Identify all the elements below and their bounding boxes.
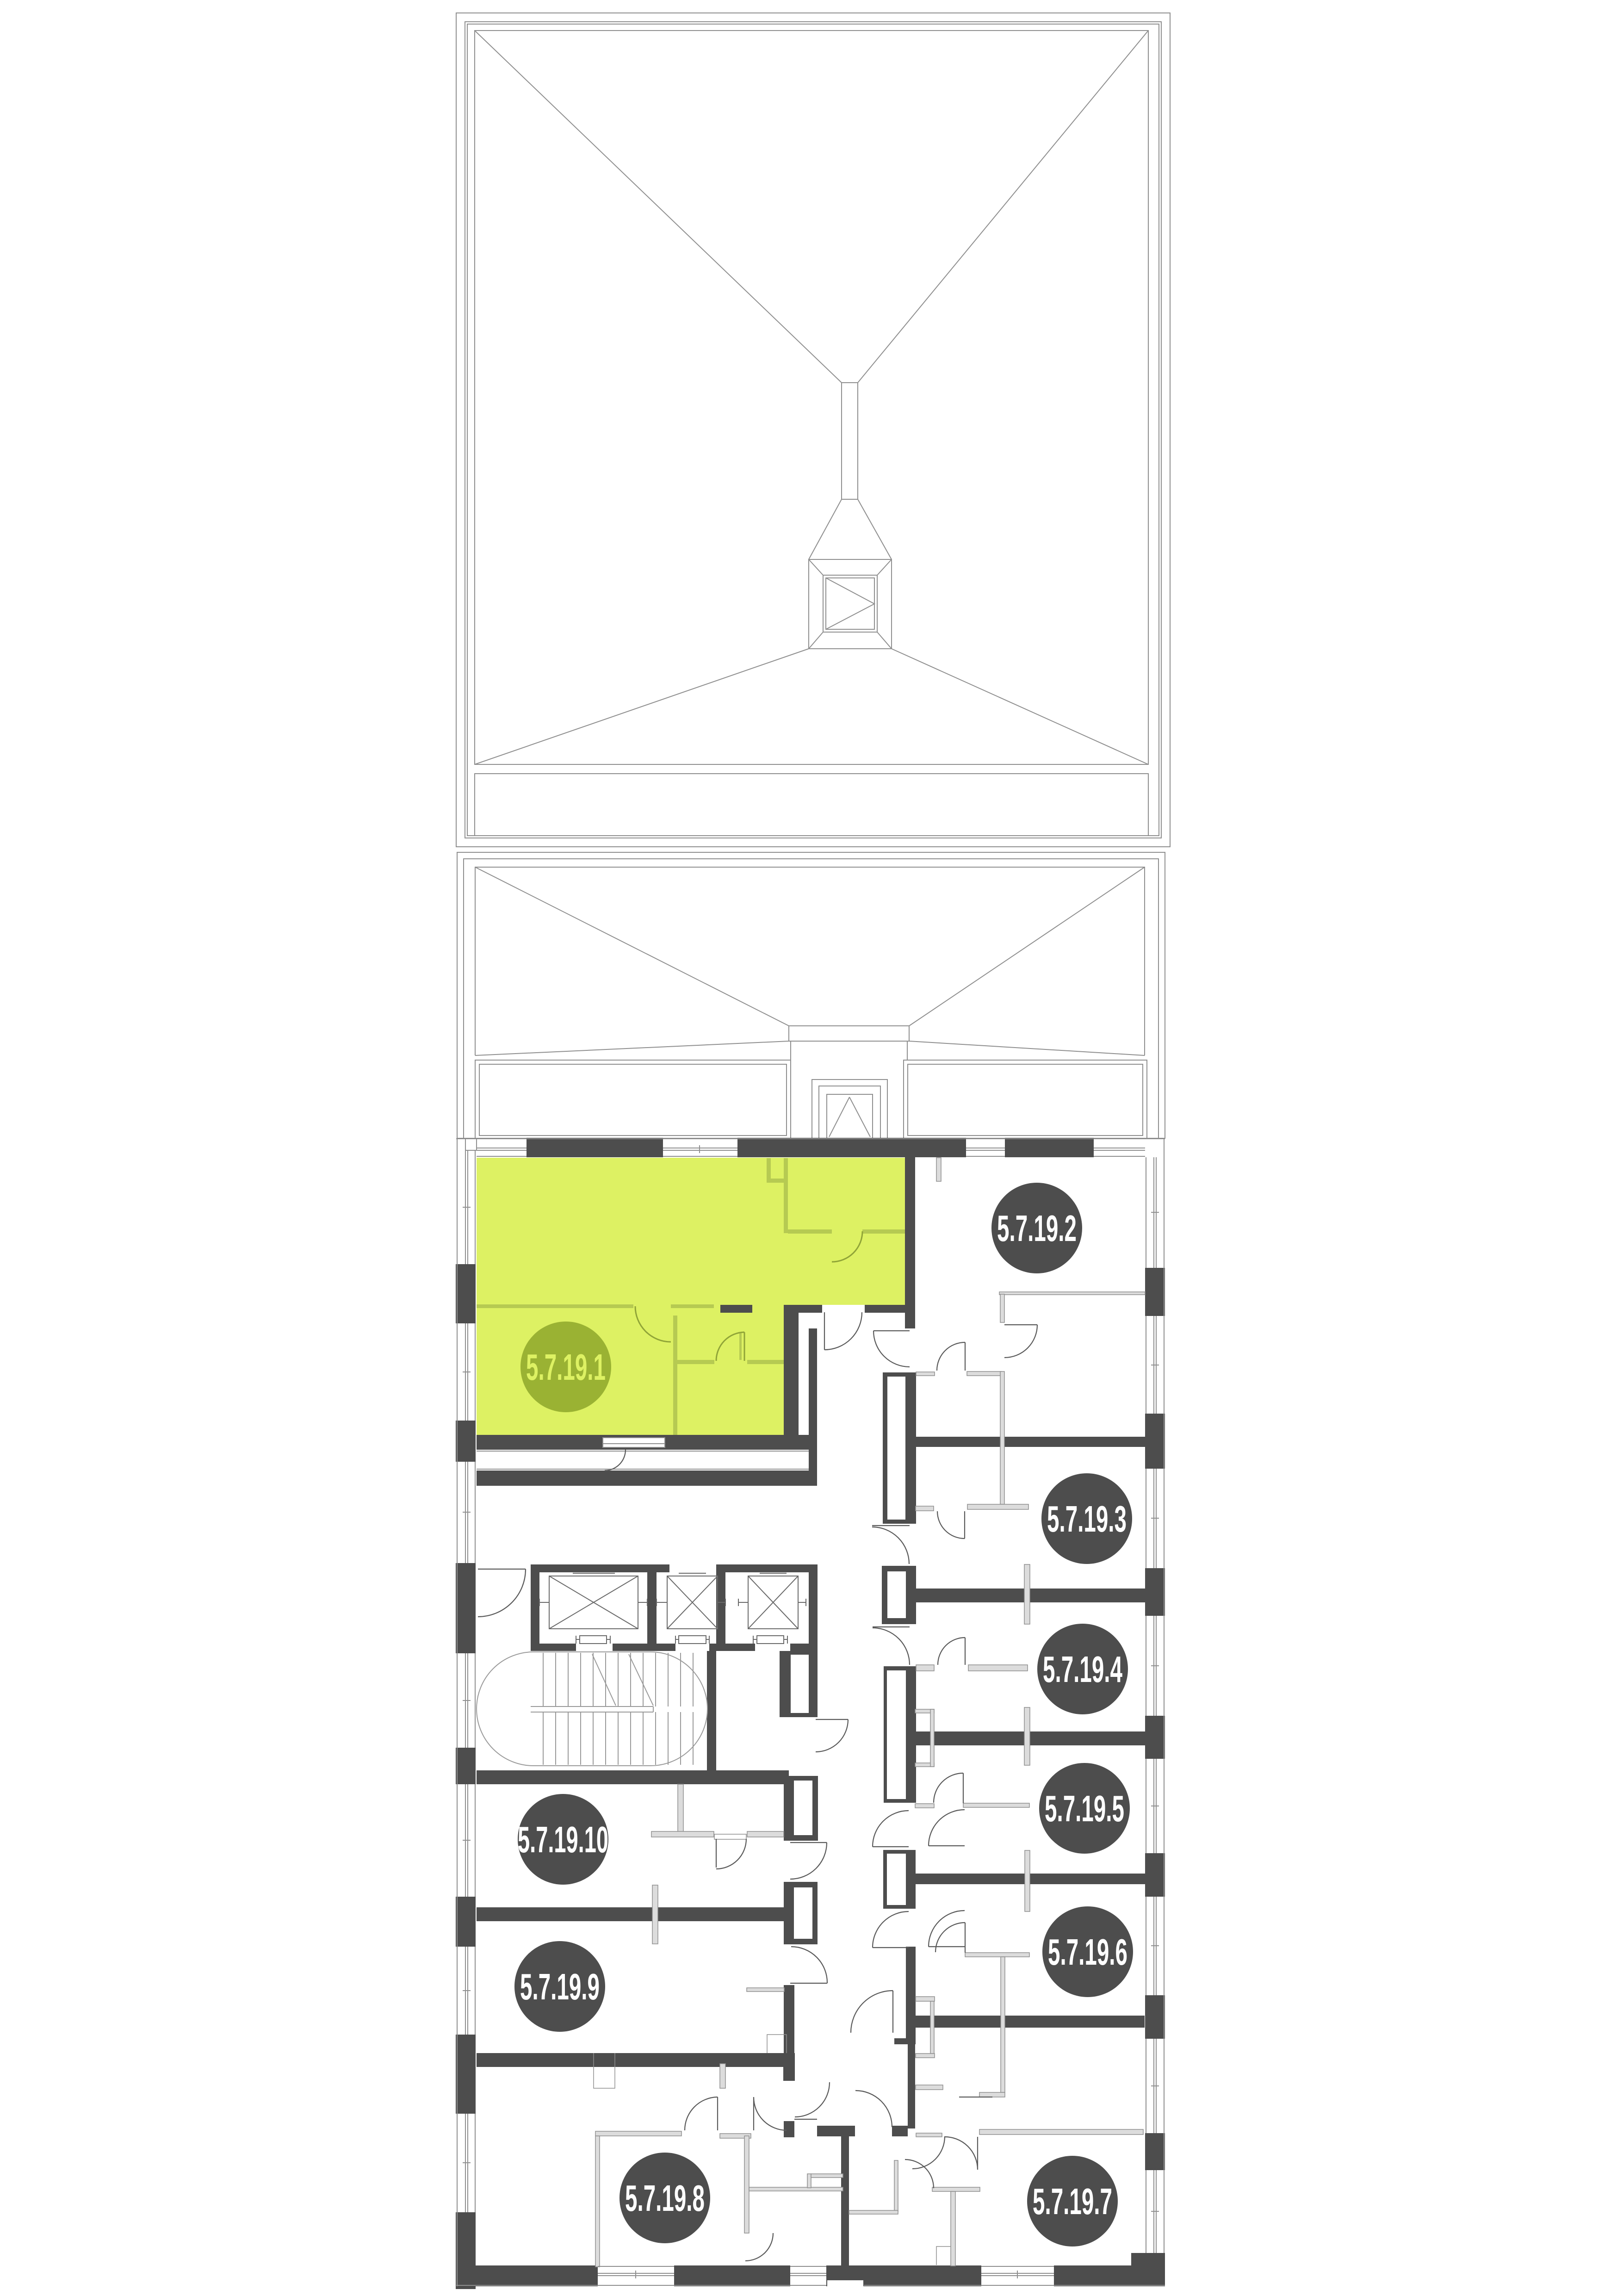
svg-text:5.7.19.3: 5.7.19.3 bbox=[1047, 1498, 1127, 1539]
svg-text:5.7.19.10: 5.7.19.10 bbox=[518, 1819, 608, 1860]
svg-text:5.7.19.2: 5.7.19.2 bbox=[997, 1208, 1077, 1249]
svg-text:5.7.19.6: 5.7.19.6 bbox=[1048, 1931, 1127, 1973]
svg-text:5.7.19.1: 5.7.19.1 bbox=[526, 1347, 606, 1388]
svg-text:5.7.19.7: 5.7.19.7 bbox=[1033, 2181, 1112, 2222]
svg-text:5.7.19.5: 5.7.19.5 bbox=[1045, 1788, 1124, 1829]
svg-text:5.7.19.4: 5.7.19.4 bbox=[1043, 1649, 1122, 1690]
svg-text:5.7.19.9: 5.7.19.9 bbox=[520, 1966, 600, 2007]
svg-text:5.7.19.8: 5.7.19.8 bbox=[625, 2178, 705, 2219]
